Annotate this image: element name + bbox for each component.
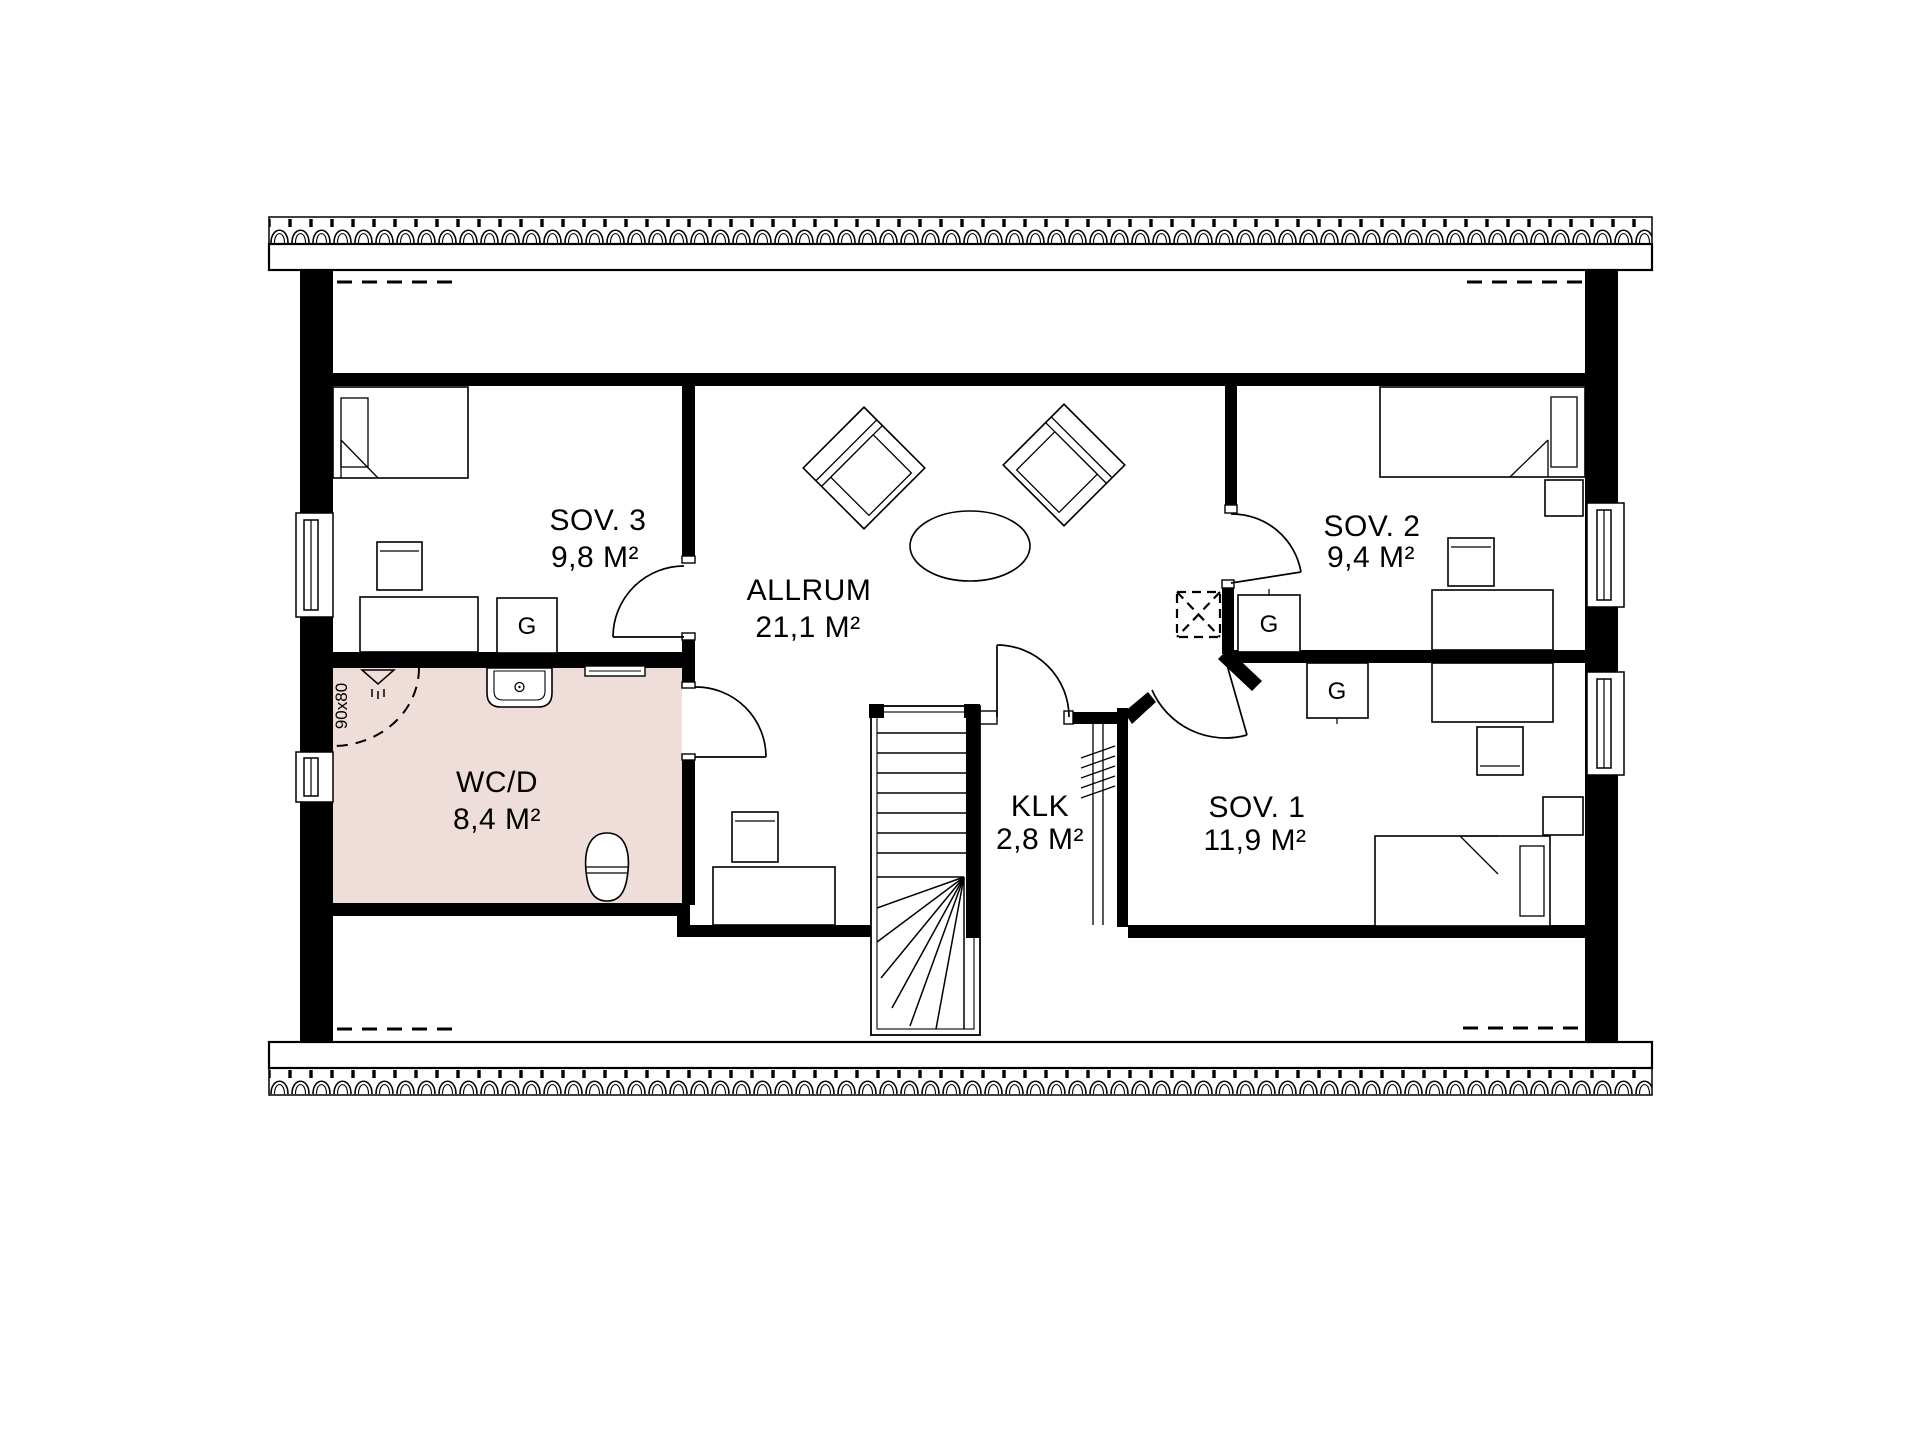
room-label-wcd: WC/D — [456, 766, 538, 799]
desk-chair — [732, 812, 778, 862]
roof-eave-top — [269, 217, 1652, 270]
wardrobe-label-sov2: G — [1260, 611, 1279, 638]
desk-chair — [377, 542, 422, 590]
fascia-bottom — [269, 1042, 1652, 1068]
room-label-klk: KLK — [1011, 790, 1069, 823]
room-area-sov1: 11,9 M² — [1204, 824, 1307, 857]
floor-plan-page: SOV. 3 9,8 M² ALLRUM 21,1 M² SOV. 2 9,4 … — [0, 0, 1920, 1440]
roof-tiles-bottom — [269, 1068, 1652, 1095]
window-sov2 — [1587, 503, 1624, 607]
fascia-top — [269, 244, 1652, 270]
bed — [1380, 387, 1585, 477]
room-label-allrum: ALLRUM — [747, 574, 872, 607]
window-sov1 — [1587, 672, 1624, 775]
room-area-sov3: 9,8 M² — [551, 541, 639, 574]
roof-eave-bottom — [269, 1042, 1652, 1095]
desk — [713, 867, 835, 925]
room-area-sov2: 9,4 M² — [1327, 541, 1415, 574]
staircase — [869, 704, 980, 1035]
room-area-allrum: 21,1 M² — [755, 611, 860, 644]
wardrobe-label-sov3: G — [518, 613, 537, 640]
toilet — [586, 833, 629, 901]
room-area-klk: 2,8 M² — [996, 823, 1084, 856]
room-label-sov1: SOV. 1 — [1209, 791, 1306, 824]
desk — [1432, 590, 1553, 650]
window-wcd — [296, 752, 333, 802]
desk-chair — [1477, 727, 1523, 775]
sink — [487, 668, 552, 707]
floor-plan-drawing: SOV. 3 9,8 M² ALLRUM 21,1 M² SOV. 2 9,4 … — [0, 0, 1920, 1440]
desk — [1432, 663, 1553, 722]
nightstand — [1543, 797, 1583, 835]
bed — [333, 387, 468, 478]
gable-wall-right — [1585, 270, 1618, 1043]
room-area-wcd: 8,4 M² — [453, 803, 541, 836]
coffee-table — [910, 511, 1030, 581]
wardrobe-label-sov1: G — [1328, 678, 1347, 705]
bed — [1375, 836, 1550, 926]
roof-tiles-top — [269, 217, 1652, 244]
nightstand — [1545, 480, 1583, 516]
room-label-sov2: SOV. 2 — [1324, 510, 1421, 543]
knee-wall-top — [333, 373, 1585, 386]
stair-wall — [966, 712, 980, 938]
desk — [360, 597, 478, 652]
shower-size-label: 90x80 — [332, 683, 351, 729]
window-sov3 — [296, 513, 333, 617]
room-label-sov3: SOV. 3 — [550, 504, 647, 537]
gable-wall-left — [300, 270, 333, 1043]
desk-chair — [1448, 538, 1494, 586]
